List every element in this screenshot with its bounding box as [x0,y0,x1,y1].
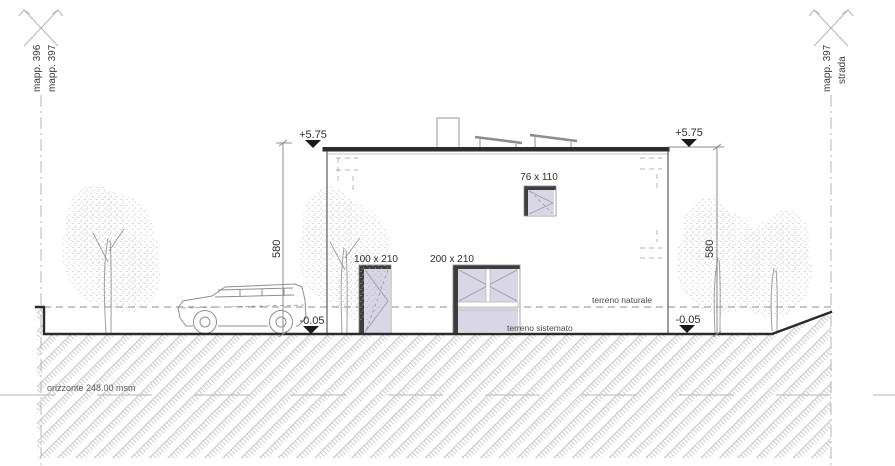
level-roof-left-label: +5.75 [299,129,327,141]
level-roof-right-label: +5.75 [675,127,703,139]
tree [62,185,160,333]
boundary-right-label-a: mapp. 397 [822,44,833,92]
height-dim-right-label: 580 [704,240,716,258]
level-marker-roof-left [305,140,321,148]
level-marker-ground-right [679,325,695,333]
elevation-drawing: mapp. 396 mapp. 397 mapp. 397 strada +5.… [0,0,895,466]
terrain-natural-label: terreno naturale [592,295,652,305]
level-ground-left-label: -0.05 [299,315,324,327]
elevation-drawing-canvas: mapp. 396 mapp. 397 mapp. 397 strada +5.… [0,0,895,466]
boundary-cross-icon [19,10,63,46]
level-marker-roof-right [681,139,697,147]
boundary-right-label-b: strada [837,56,848,84]
boundary-left-label-a: mapp. 396 [32,44,43,92]
boundary-left-label-b: mapp. 397 [47,44,58,92]
level-ground-right-label: -0.05 [675,314,700,326]
car [178,284,306,334]
boundary-cross-icon [809,10,853,46]
ground-hatch [37,308,831,458]
roof-window-label: 76 x 110 [520,172,558,183]
horizon-label: orizzonte 248.00 msm [47,383,136,393]
garage-door-label: 200 x 210 [430,254,474,265]
terrain-finished-label: terreno sistemato [507,323,573,333]
entry-door-label: 100 x 210 [354,254,398,265]
roof-slab [323,147,670,152]
height-dim-left-label: 580 [271,240,283,258]
roof-window [524,186,556,216]
chimney [437,118,459,148]
solar-panel-icon [475,135,577,147]
